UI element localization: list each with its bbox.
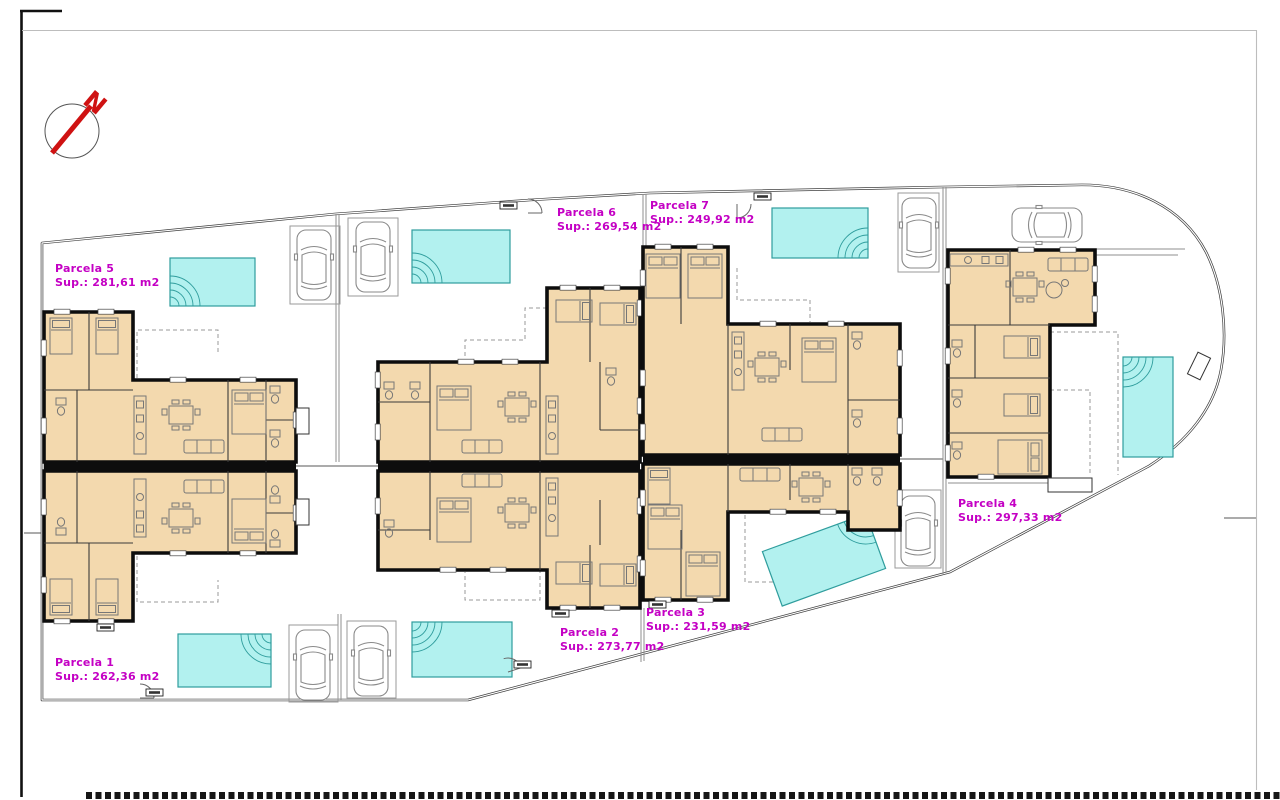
micro-label [552, 610, 569, 617]
parcela-3-area: Sup.: 231,59 m2 [646, 620, 750, 633]
pool-parcela-4 [1123, 357, 1173, 457]
parcela-5-area: Sup.: 281,61 m2 [55, 276, 159, 289]
label-parcela-1: Parcela 1 Sup.: 262,36 m2 [55, 656, 159, 683]
parcela-1-area: Sup.: 262,36 m2 [55, 670, 159, 683]
car-top-1 [295, 230, 334, 300]
car-right-1 [899, 496, 938, 566]
building-parcelas-5-1 [41, 309, 309, 624]
pool-parcela-6 [412, 230, 510, 283]
pool-parcela-2 [412, 622, 512, 677]
site-plan-sheet: N [0, 0, 1280, 800]
micro-label [97, 624, 114, 631]
parcela-7-name: Parcela 7 [650, 199, 709, 212]
parcela-3-name: Parcela 3 [646, 606, 705, 619]
parcela-1-name: Parcela 1 [55, 656, 114, 669]
label-parcela-4: Parcela 4 Sup.: 297,33 m2 [958, 497, 1062, 524]
parcela-4-name: Parcela 4 [958, 497, 1017, 510]
micro-label [514, 661, 531, 668]
micro-label [146, 689, 163, 696]
parcela-5-name: Parcela 5 [55, 262, 114, 275]
site-plan-drawing: N [0, 0, 1280, 800]
car-top-4 [1012, 206, 1082, 245]
car-top-3 [900, 198, 939, 268]
car-bottom-1 [294, 630, 333, 700]
parcela-6-area: Sup.: 269,54 m2 [557, 220, 661, 233]
car-top-2 [354, 222, 393, 292]
label-parcela-5: Parcela 5 Sup.: 281,61 m2 [55, 262, 159, 289]
parcela-6-name: Parcela 6 [557, 206, 616, 219]
label-parcela-7: Parcela 7 Sup.: 249,92 m2 [650, 199, 754, 226]
pool-parcela-5 [170, 258, 255, 306]
north-compass: N [45, 85, 112, 158]
car-bottom-2 [352, 626, 391, 696]
micro-label [754, 193, 771, 200]
parcela-2-area: Sup.: 273,77 m2 [560, 640, 664, 653]
building-parcelas-6-2 [375, 285, 642, 610]
driveway-lines-p4 [1095, 249, 1185, 255]
label-parcela-3: Parcela 3 Sup.: 231,59 m2 [646, 606, 750, 633]
divider-p5-p6 [336, 214, 339, 462]
gate-parcela-4 [1187, 352, 1210, 380]
pool-parcela-1 [178, 634, 271, 687]
parcela-4-area: Sup.: 297,33 m2 [958, 511, 1062, 524]
pool-parcela-7 [772, 208, 868, 258]
micro-label [500, 202, 517, 209]
parcela-2-name: Parcela 2 [560, 626, 619, 639]
parcela-7-area: Sup.: 249,92 m2 [650, 213, 754, 226]
divider-p7-p4 [943, 187, 946, 574]
